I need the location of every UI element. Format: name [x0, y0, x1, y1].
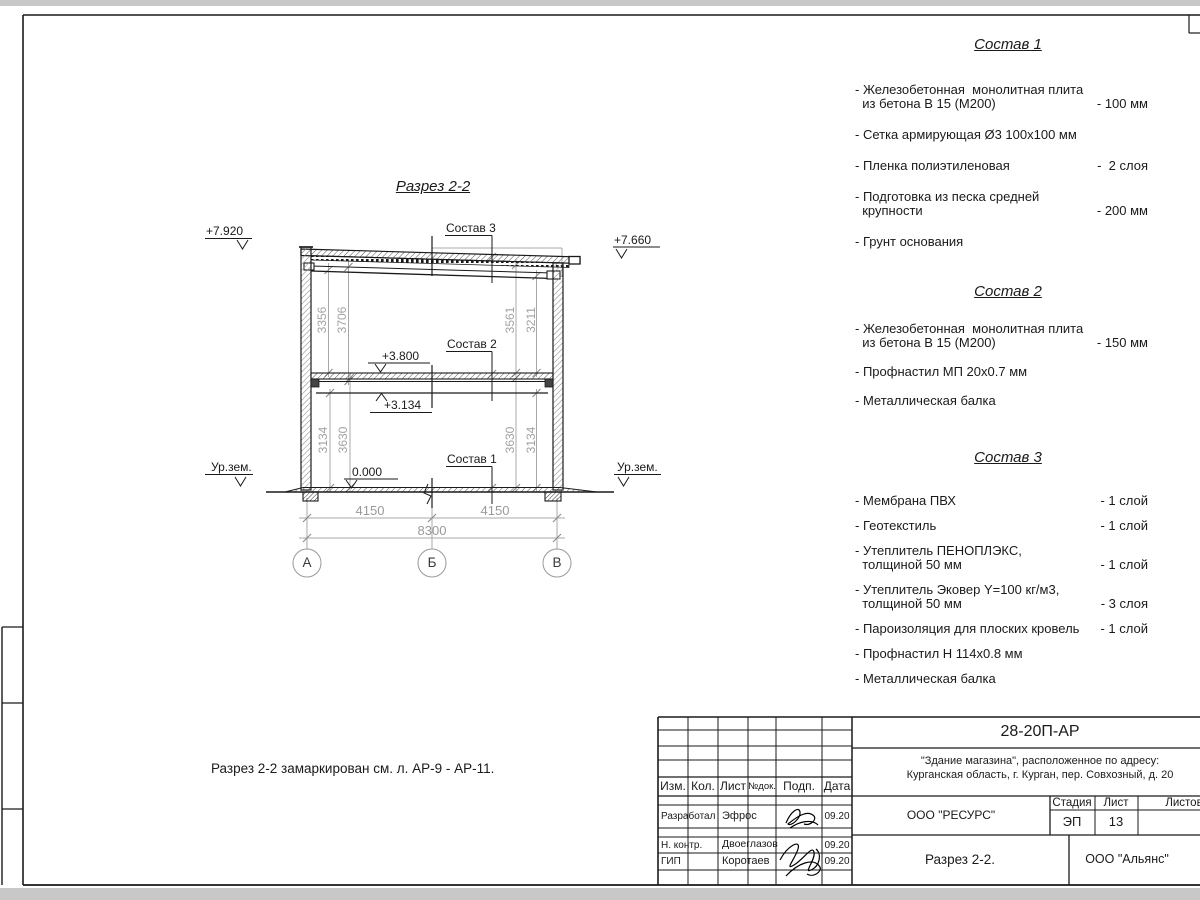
signature-developer [786, 809, 818, 828]
item-name: - Мембрана ПВХ [855, 494, 956, 508]
signature-control [780, 844, 820, 876]
col-izm: Изм. [660, 780, 686, 793]
dim-span-right: 4150 [481, 504, 510, 518]
name-control: Двоеглазов [722, 839, 778, 851]
item-value: - 2 слоя [1097, 159, 1148, 173]
composition-1-callout: Состав 1 [447, 453, 497, 466]
vdim-lower-left-1: 3134 [316, 418, 330, 462]
axis-bubble-a: А [302, 556, 311, 571]
stage-label: Стадия [1052, 797, 1091, 810]
project-address-line1: "Здание магазина", расположенное по адре… [921, 755, 1159, 767]
composition-2-title: Состав 2 [868, 283, 1148, 300]
composition-item: - Железобетонная монолитная плита из бет… [855, 83, 1148, 111]
item-value: - 1 слой [1100, 494, 1148, 508]
col-kol: Кол. [691, 780, 715, 793]
composition-2-callout: Состав 2 [447, 338, 497, 351]
item-name: - Профнастил МП 20х0.7 мм [855, 365, 1027, 379]
col-data: Дата [824, 780, 851, 793]
composition-list-2: Состав 2 - Железобетонная монолитная пли… [848, 283, 1148, 423]
col-list: Лист [720, 780, 746, 793]
item-name: - Подготовка из песка средней крупности [855, 190, 1039, 218]
vdim-upper-right-2: 3211 [524, 298, 538, 342]
composition-item: - Профнастил Н 114х0.8 мм [855, 647, 1148, 661]
role-control: Н. контр. [661, 840, 702, 851]
composition-list-1: Состав 1 - Железобетонная монолитная пли… [848, 36, 1148, 266]
sheet-title: Разрез 2-2. [925, 853, 995, 868]
composition-item: - Профнастил МП 20х0.7 мм [855, 365, 1148, 379]
composition-3-title: Состав 3 [868, 449, 1148, 466]
item-value: - 3 слоя [1101, 597, 1148, 611]
elevation-floor2: +3.800 [382, 350, 419, 363]
item-name: - Железобетонная монолитная плита из бет… [855, 322, 1083, 350]
name-developer: Эфрос [722, 810, 757, 822]
section-title: Разрез 2-2 [396, 179, 470, 196]
composition-1-title: Состав 1 [868, 36, 1148, 53]
date-developer: 09.20 [824, 811, 849, 822]
composition-list-3: Состав 3 - Мембрана ПВХ- 1 слой - Геотек… [848, 449, 1148, 697]
composition-item: - Геотекстиль- 1 слой [855, 519, 1148, 533]
item-name: - Железобетонная монолитная плита из бет… [855, 83, 1083, 111]
axis-bubble-v: В [552, 556, 561, 571]
composition-item: - Пароизоляция для плоских кровель- 1 сл… [855, 622, 1148, 636]
item-value: - 150 мм [1097, 336, 1148, 350]
item-value: - 1 слой [1100, 558, 1148, 572]
item-value: - 100 мм [1097, 97, 1148, 111]
sheet-label: Лист [1104, 797, 1129, 810]
role-developer: Разработал [661, 811, 715, 822]
dim-span-left: 4150 [356, 504, 385, 518]
composition-item: - Металлическая балка [855, 394, 1148, 408]
name-gip: Коротаев [722, 855, 770, 867]
doc-number: 28-20П-АР [1000, 723, 1079, 741]
composition-item: - Подготовка из песка средней крупности-… [855, 190, 1148, 218]
project-address-line2: Курганская область, г. Курган, пер. Совх… [907, 769, 1174, 781]
org-name: ООО "РЕСУРС" [907, 809, 995, 822]
elevation-zero: 0.000 [352, 466, 382, 479]
col-podp: Подп. [783, 780, 815, 793]
item-value: - 200 мм [1097, 204, 1148, 218]
axis-bubble-b: Б [428, 556, 437, 571]
building-section [266, 236, 614, 508]
composition-3-callout: Состав 3 [446, 222, 496, 235]
vdim-upper-right-1: 3561 [503, 298, 517, 342]
item-name: - Металлическая балка [855, 394, 996, 408]
vdim-lower-left-2: 3630 [336, 418, 350, 462]
composition-item: - Утеплитель ПЕНОПЛЭКС, толщиной 50 мм- … [855, 544, 1148, 572]
item-name: - Утеплитель Эковер Y=100 кг/м3, толщино… [855, 583, 1059, 611]
composition-item: - Металлическая балка [855, 672, 1148, 686]
col-ndok: №док. [748, 782, 776, 792]
composition-item: - Грунт основания [855, 235, 1148, 249]
contractor-name: ООО "Альянс" [1085, 853, 1169, 867]
role-gip: ГИП [661, 856, 681, 867]
ground-level-label-right: Ур.зем. [617, 461, 658, 474]
item-name: - Сетка армирующая Ø3 100х100 мм [855, 128, 1077, 142]
drawing-sheet: Разрез 2-2 +7.920 +7.660 +3.800 +3.134 0… [0, 0, 1200, 900]
vdim-lower-right-2: 3134 [524, 418, 538, 462]
composition-item: - Мембрана ПВХ- 1 слой [855, 494, 1148, 508]
composition-item: - Железобетонная монолитная плита из бет… [855, 322, 1148, 350]
composition-item: - Пленка полиэтиленовая- 2 слоя [855, 159, 1148, 173]
date-control: 09.20 [824, 840, 849, 851]
vdim-upper-left-2: 3706 [335, 298, 349, 342]
composition-item: - Сетка армирующая Ø3 100х100 мм [855, 128, 1148, 142]
signatures [780, 809, 820, 876]
elevation-beam: +3.134 [384, 399, 421, 412]
sheet-value: 13 [1109, 815, 1123, 829]
item-value: - 1 слой [1100, 519, 1148, 533]
item-name: - Пароизоляция для плоских кровель [855, 622, 1079, 636]
ground-level-label-left: Ур.зем. [211, 461, 252, 474]
stage-value: ЭП [1063, 815, 1082, 829]
vdim-upper-left-1: 3356 [315, 298, 329, 342]
composition-item: - Утеплитель Эковер Y=100 кг/м3, толщино… [855, 583, 1148, 611]
dim-total: 8300 [418, 524, 447, 538]
section-note: Разрез 2-2 замаркирован см. л. АР-9 - АР… [211, 762, 494, 777]
elevation-roof-left: +7.920 [206, 225, 243, 238]
item-name: - Утеплитель ПЕНОПЛЭКС, толщиной 50 мм [855, 544, 1022, 572]
elevation-roof-right: +7.660 [614, 234, 651, 247]
sheets-label: Листов [1165, 797, 1200, 810]
date-gip: 09.20 [824, 856, 849, 867]
item-name: - Грунт основания [855, 235, 963, 249]
leaders-and-marks [205, 236, 661, 505]
item-name: - Профнастил Н 114х0.8 мм [855, 647, 1023, 661]
item-value: - 1 слой [1100, 622, 1148, 636]
item-name: - Металлическая балка [855, 672, 996, 686]
vdim-lower-right-1: 3630 [503, 418, 517, 462]
item-name: - Геотекстиль [855, 519, 936, 533]
item-name: - Пленка полиэтиленовая [855, 159, 1010, 173]
